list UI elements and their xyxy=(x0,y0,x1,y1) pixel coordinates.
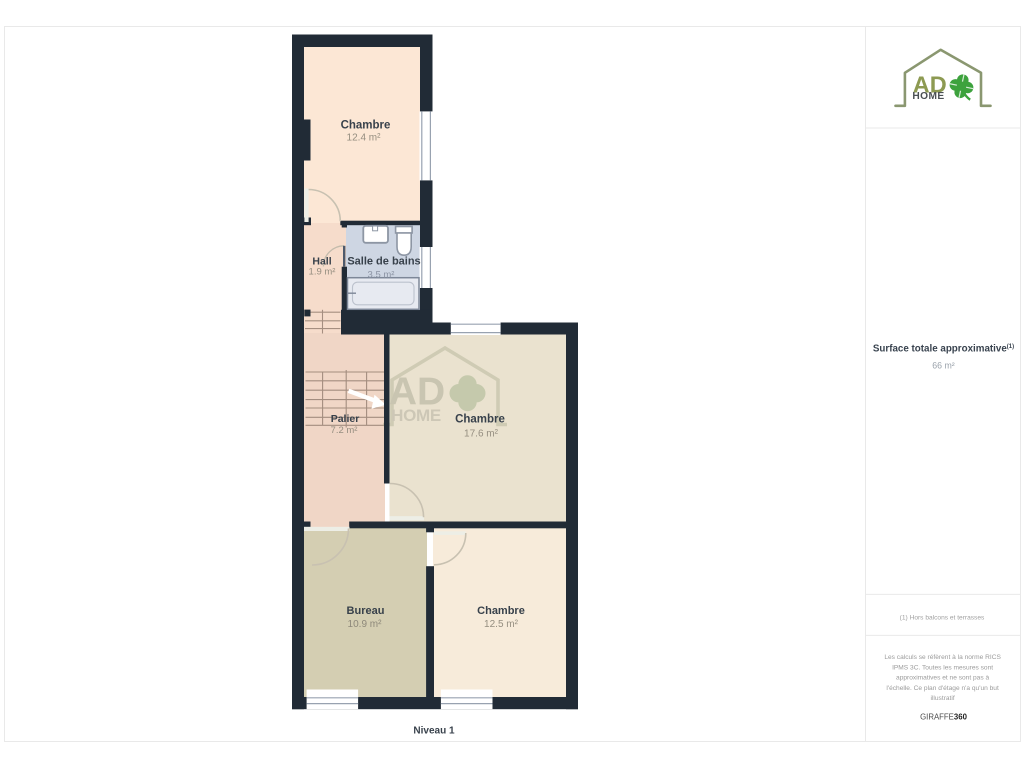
svg-text:l'échelle. Ce plan d'étage n'a: l'échelle. Ce plan d'étage n'a qu'un but xyxy=(886,685,999,692)
svg-text:HOME: HOME xyxy=(391,406,441,425)
svg-text:Niveau 1: Niveau 1 xyxy=(413,726,455,737)
svg-text:3.5 m²: 3.5 m² xyxy=(368,270,395,281)
svg-text:(1) Hors balcons et terrasses: (1) Hors balcons et terrasses xyxy=(900,615,985,622)
svg-text:Salle de bains: Salle de bains xyxy=(347,256,420,268)
svg-text:66 m²: 66 m² xyxy=(932,361,955,371)
svg-text:Bureau: Bureau xyxy=(347,605,385,617)
svg-text:HOME: HOME xyxy=(912,91,944,102)
svg-text:10.9 m²: 10.9 m² xyxy=(348,619,383,630)
svg-text:1.9 m²: 1.9 m² xyxy=(309,267,336,278)
svg-text:IPMS 3C. Toutes les mesures so: IPMS 3C. Toutes les mesures sont xyxy=(892,664,993,671)
svg-text:12.5 m²: 12.5 m² xyxy=(484,619,519,630)
svg-text:Chambre: Chambre xyxy=(341,120,391,132)
svg-text:approximatives et ne sont pas: approximatives et ne sont pas à xyxy=(896,675,989,682)
svg-text:12.4 m²: 12.4 m² xyxy=(347,133,382,144)
svg-text:Les calculs se réfèrent à la n: Les calculs se réfèrent à la norme RICS xyxy=(884,654,1001,661)
svg-text:Surface totale approximative(1: Surface totale approximative(1) xyxy=(873,344,1014,355)
svg-text:GIRAFFE360: GIRAFFE360 xyxy=(920,713,967,722)
svg-text:Chambre: Chambre xyxy=(477,605,525,617)
svg-text:7.2 m²: 7.2 m² xyxy=(331,425,358,436)
svg-text:Palier: Palier xyxy=(331,413,360,425)
svg-text:illustratif: illustratif xyxy=(931,695,955,702)
svg-text:Chambre: Chambre xyxy=(455,414,505,426)
svg-text:17.6 m²: 17.6 m² xyxy=(464,429,499,440)
